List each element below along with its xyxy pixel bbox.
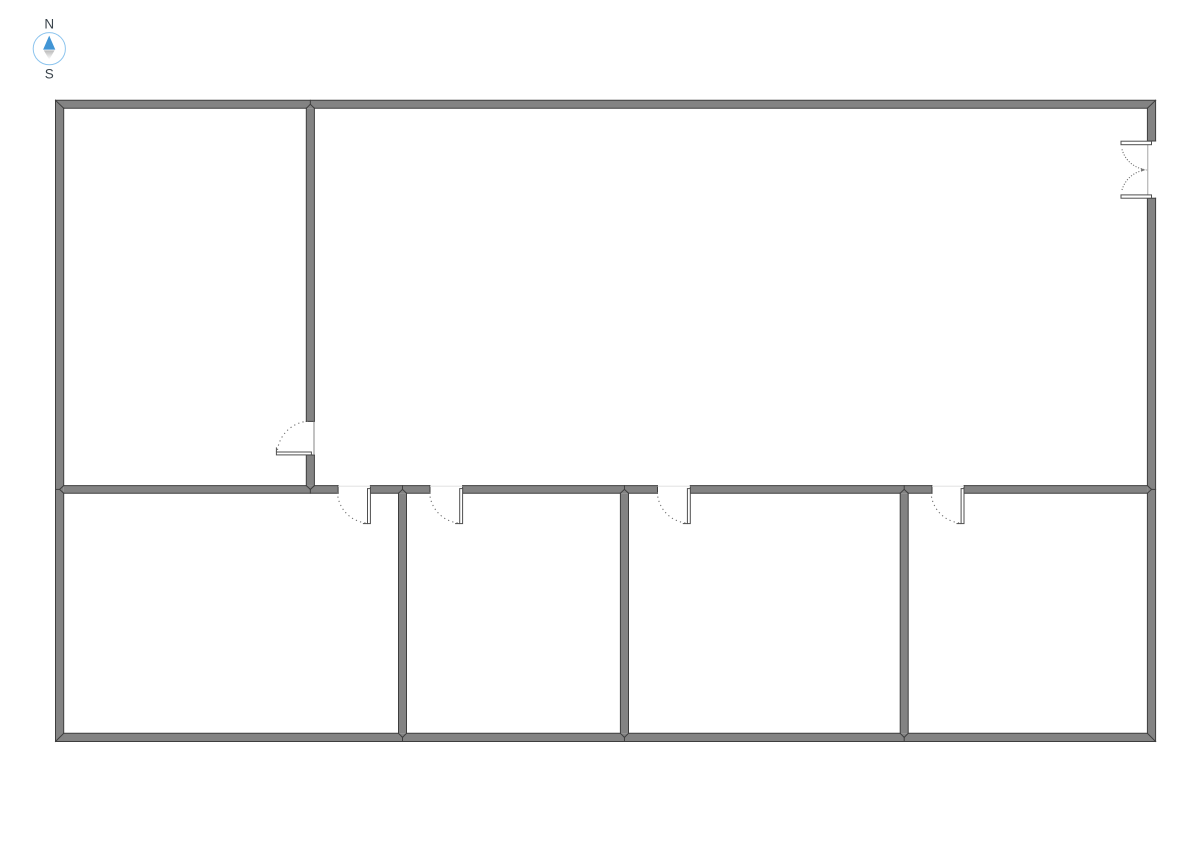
svg-text:N: N	[44, 17, 54, 32]
svg-text:S: S	[45, 67, 54, 82]
